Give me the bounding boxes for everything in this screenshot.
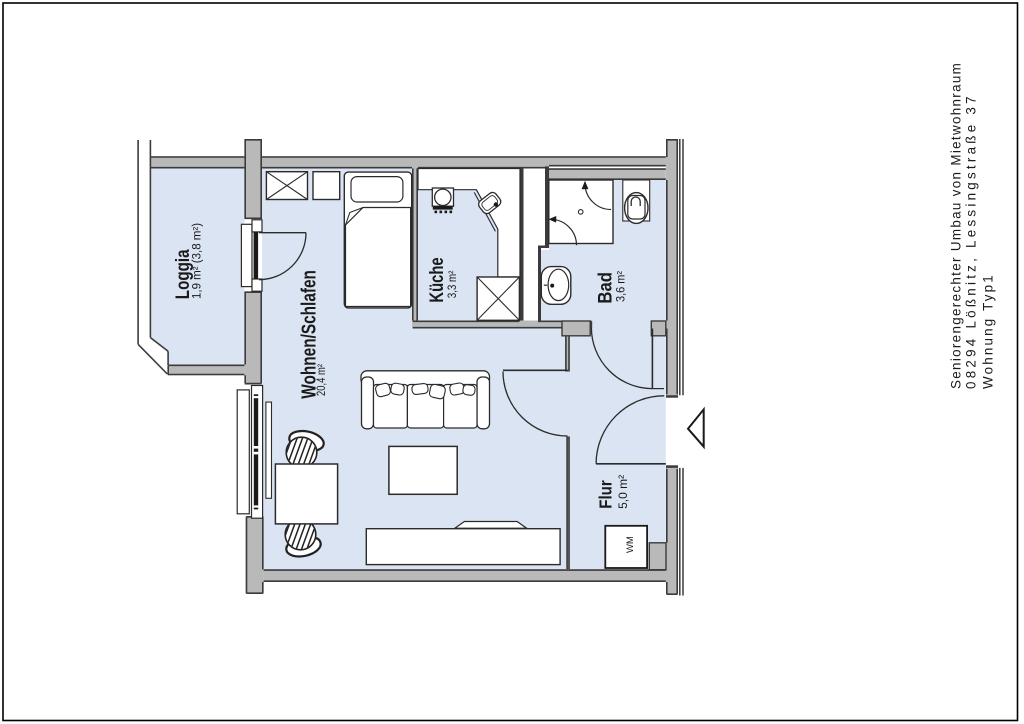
svg-text:Flur: Flur: [595, 480, 616, 509]
svg-text:1,9 m² (3,8 m²): 1,9 m² (3,8 m²): [192, 223, 204, 299]
svg-text:Loggia: Loggia: [171, 249, 193, 299]
svg-text:3,6 m²: 3,6 m²: [615, 271, 627, 302]
svg-text:Wohnung Typ1: Wohnung Typ1: [981, 273, 996, 389]
svg-text:WM: WM: [625, 536, 636, 553]
svg-text:Bad: Bad: [595, 272, 616, 304]
svg-text:20,4 m²: 20,4 m²: [315, 364, 328, 396]
svg-text:Küche: Küche: [426, 257, 447, 302]
svg-text:5,0 m²: 5,0 m²: [616, 475, 630, 509]
svg-text:3,3 m²: 3,3 m²: [446, 270, 459, 298]
svg-text:08294 Lößnitz, Lessingstraße: 08294 Lößnitz, Lessingstraße 37: [964, 93, 979, 389]
svg-text:Seniorengerechter Umbau von: Seniorengerechter Umbau von Mietwohnraum: [949, 62, 964, 389]
